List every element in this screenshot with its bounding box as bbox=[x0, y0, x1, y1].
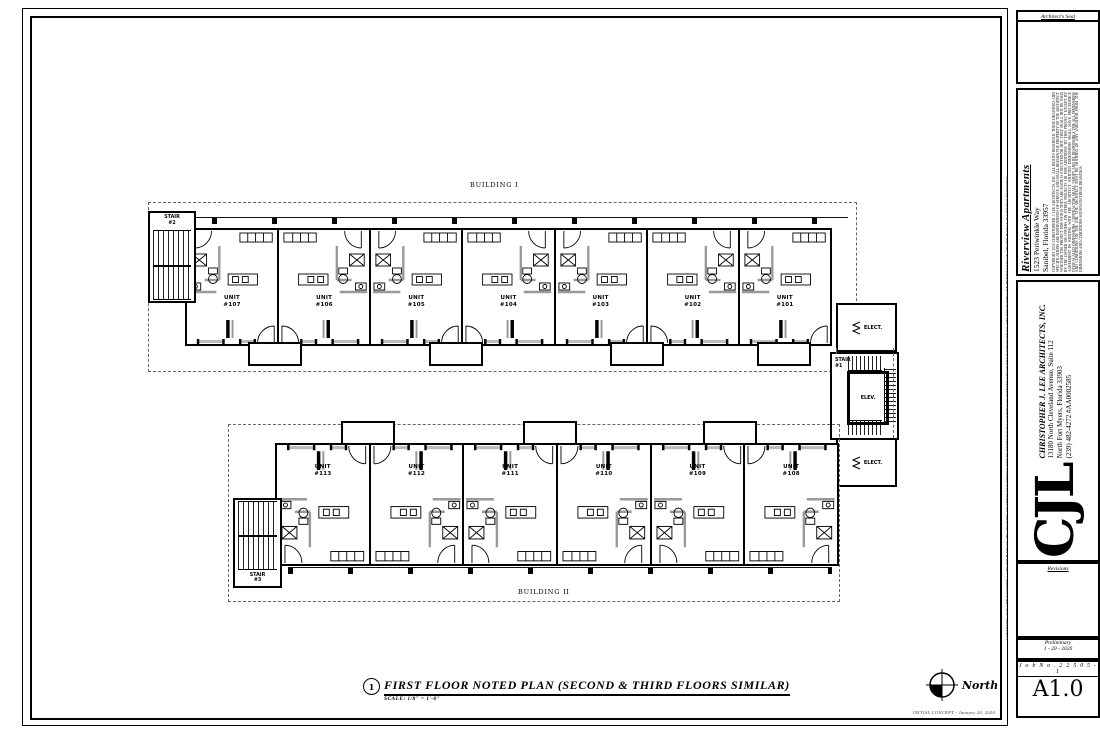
architect-address1: 13180 North Cleveland Avenue, Suite 112 bbox=[1047, 304, 1056, 458]
unit-102: UNIT#102 bbox=[648, 230, 740, 344]
unit-label: UNIT#105 bbox=[371, 295, 461, 309]
architect-name: CHRISTOPHER J. LEE ARCHITECTS, INC. bbox=[1038, 304, 1047, 458]
unit-interior-linework bbox=[187, 230, 277, 344]
walkway-connector-dash bbox=[836, 348, 837, 354]
unit-interior-linework bbox=[556, 230, 646, 344]
unit-111: UNIT#111 bbox=[464, 445, 558, 564]
building1-porch bbox=[429, 342, 483, 366]
stair2-treads bbox=[153, 230, 191, 301]
walkway-connector-dash bbox=[893, 348, 894, 438]
project-info-box: Riverview Apartments 1523 Periwinkle Way… bbox=[1016, 88, 1100, 276]
sheet-number-box: J o b N o . 2 2 5 0 5 - 1 A1.0 bbox=[1016, 660, 1100, 718]
unit-interior-linework bbox=[740, 230, 830, 344]
electrical-room-upper: ELECT. bbox=[836, 303, 897, 352]
unit-label: UNIT#110 bbox=[558, 464, 650, 478]
project-address1: 1523 Periwinkle Way bbox=[1032, 92, 1041, 272]
building1-porch bbox=[757, 342, 811, 366]
job-number: J o b N o . 2 2 5 0 5 - 1 bbox=[1018, 662, 1098, 677]
unit-label: UNIT#102 bbox=[648, 295, 738, 309]
building2-porch bbox=[523, 421, 577, 445]
unit-101: UNIT#101 bbox=[740, 230, 830, 344]
unit-interior-linework bbox=[464, 445, 556, 564]
unit-interior-linework bbox=[371, 445, 463, 564]
north-label: North bbox=[962, 679, 998, 692]
north-arrow-group: North bbox=[925, 668, 998, 702]
building2-plan: UNIT#113 UNIT#112 UNIT#111 UNIT#110 UNIT… bbox=[275, 443, 839, 566]
unit-interior-linework bbox=[371, 230, 461, 344]
elevator-shaft: ELEV. bbox=[847, 371, 889, 425]
unit-label: UNIT#108 bbox=[745, 464, 837, 478]
door-symbol bbox=[851, 321, 861, 335]
elevator-label: ELEV. bbox=[861, 396, 876, 401]
unit-label: UNIT#109 bbox=[652, 464, 744, 478]
unit-112: UNIT#112 bbox=[371, 445, 465, 564]
north-arrow-icon bbox=[925, 668, 959, 702]
stair3-treads bbox=[238, 501, 277, 570]
project-name: Riverview Apartments bbox=[1020, 92, 1032, 272]
drawing-title-group: 1 FIRST FLOOR NOTED PLAN (SECOND & THIRD… bbox=[363, 678, 790, 702]
drawing-callout-number: 1 bbox=[363, 678, 380, 695]
unit-label: UNIT#107 bbox=[187, 295, 277, 309]
unit-label: UNIT#111 bbox=[464, 464, 556, 478]
unit-label: UNIT#103 bbox=[556, 295, 646, 309]
unit-label: UNIT#113 bbox=[277, 464, 369, 478]
project-info-rotated: Riverview Apartments 1523 Periwinkle Way… bbox=[1020, 92, 1094, 272]
architects-seal-box: Architect's Seal bbox=[1016, 10, 1100, 84]
stair1-treads-top bbox=[848, 356, 882, 371]
building2-title: BUILDING II bbox=[518, 588, 570, 596]
sheet-number: A1.0 bbox=[1018, 677, 1098, 702]
drawing-title: FIRST FLOOR NOTED PLAN (SECOND & THIRD F… bbox=[384, 678, 790, 696]
unit-label: UNIT#101 bbox=[740, 295, 830, 309]
revisions-label: Revisions bbox=[1018, 564, 1098, 572]
stair2-label: STAIR#2 bbox=[150, 213, 194, 229]
stair3-block: STAIR#3 bbox=[233, 498, 282, 588]
architect-info-box: CJL CHRISTOPHER J. LEE ARCHITECTS, INC. … bbox=[1016, 280, 1100, 562]
project-address2: Sanibel, Florida 33957 bbox=[1041, 92, 1050, 272]
unit-label: UNIT#112 bbox=[371, 464, 463, 478]
unit-interior-linework bbox=[279, 230, 369, 344]
architects-seal-label: Architect's Seal bbox=[1018, 12, 1098, 22]
building1-porch bbox=[248, 342, 302, 366]
architect-info-rotated: CJL CHRISTOPHER J. LEE ARCHITECTS, INC. … bbox=[1020, 284, 1092, 558]
unit-105: UNIT#105 bbox=[371, 230, 463, 344]
architect-address2: North Fort Myers, Florida 33903 bbox=[1056, 304, 1065, 458]
electrical-room-lower: ELECT. bbox=[836, 438, 897, 487]
building1-title: BUILDING I bbox=[470, 181, 518, 189]
door-symbol bbox=[851, 456, 861, 470]
unit-107: UNIT#107 bbox=[187, 230, 279, 344]
unit-label: UNIT#104 bbox=[463, 295, 553, 309]
architect-logo: CJL bbox=[1033, 464, 1080, 558]
status-line2: 1 - 20 - 2020 bbox=[1018, 646, 1098, 652]
architect-phone-license: (239) 482-4272 #AA0002585 bbox=[1065, 304, 1074, 458]
unit-103: UNIT#103 bbox=[556, 230, 648, 344]
unit-interior-linework bbox=[463, 230, 553, 344]
concept-note: INITIAL CONCEPT - January 20, 2020 bbox=[913, 710, 995, 715]
unit-113: UNIT#113 bbox=[277, 445, 371, 564]
stair3-label: STAIR#3 bbox=[235, 571, 280, 587]
drawing-sheet: BUILDING I UNIT#107 UNIT#106 UNIT#105 UN… bbox=[0, 0, 1100, 732]
unit-110: UNIT#110 bbox=[558, 445, 652, 564]
building1-porch bbox=[610, 342, 664, 366]
stair1-elevator-core: STAIR#1 ELEV. bbox=[830, 352, 899, 440]
stair2-block: STAIR#2 bbox=[148, 211, 196, 303]
unit-interior-linework bbox=[648, 230, 738, 344]
project-fine-print: COPYRIGHT 2020 CHRISTOPHER J. LEE ARCHIT… bbox=[1053, 92, 1085, 272]
unit-interior-linework bbox=[558, 445, 650, 564]
edge-copyright-microtext: COPYRIGHT 2020 CHRISTOPHER J. LEE ARCHIT… bbox=[1006, 20, 1012, 640]
unit-109: UNIT#109 bbox=[652, 445, 746, 564]
unit-label: UNIT#106 bbox=[279, 295, 369, 309]
building2-porch bbox=[341, 421, 395, 445]
unit-interior-linework bbox=[652, 445, 744, 564]
status-box: Preliminary 1 - 20 - 2020 bbox=[1016, 638, 1100, 660]
unit-106: UNIT#106 bbox=[279, 230, 371, 344]
unit-interior-linework bbox=[277, 445, 369, 564]
building1-walkway-colonnade bbox=[152, 217, 848, 224]
building1-plan: UNIT#107 UNIT#106 UNIT#105 UNIT#104 UNIT… bbox=[185, 228, 832, 346]
unit-108: UNIT#108 bbox=[745, 445, 837, 564]
drawing-scale: SCALE: 1/8" = 1'-0" bbox=[384, 696, 790, 702]
building2-porch bbox=[703, 421, 757, 445]
unit-interior-linework bbox=[745, 445, 837, 564]
revisions-box: Revisions bbox=[1016, 562, 1100, 638]
building2-walkway-colonnade bbox=[288, 567, 832, 574]
unit-104: UNIT#104 bbox=[463, 230, 555, 344]
